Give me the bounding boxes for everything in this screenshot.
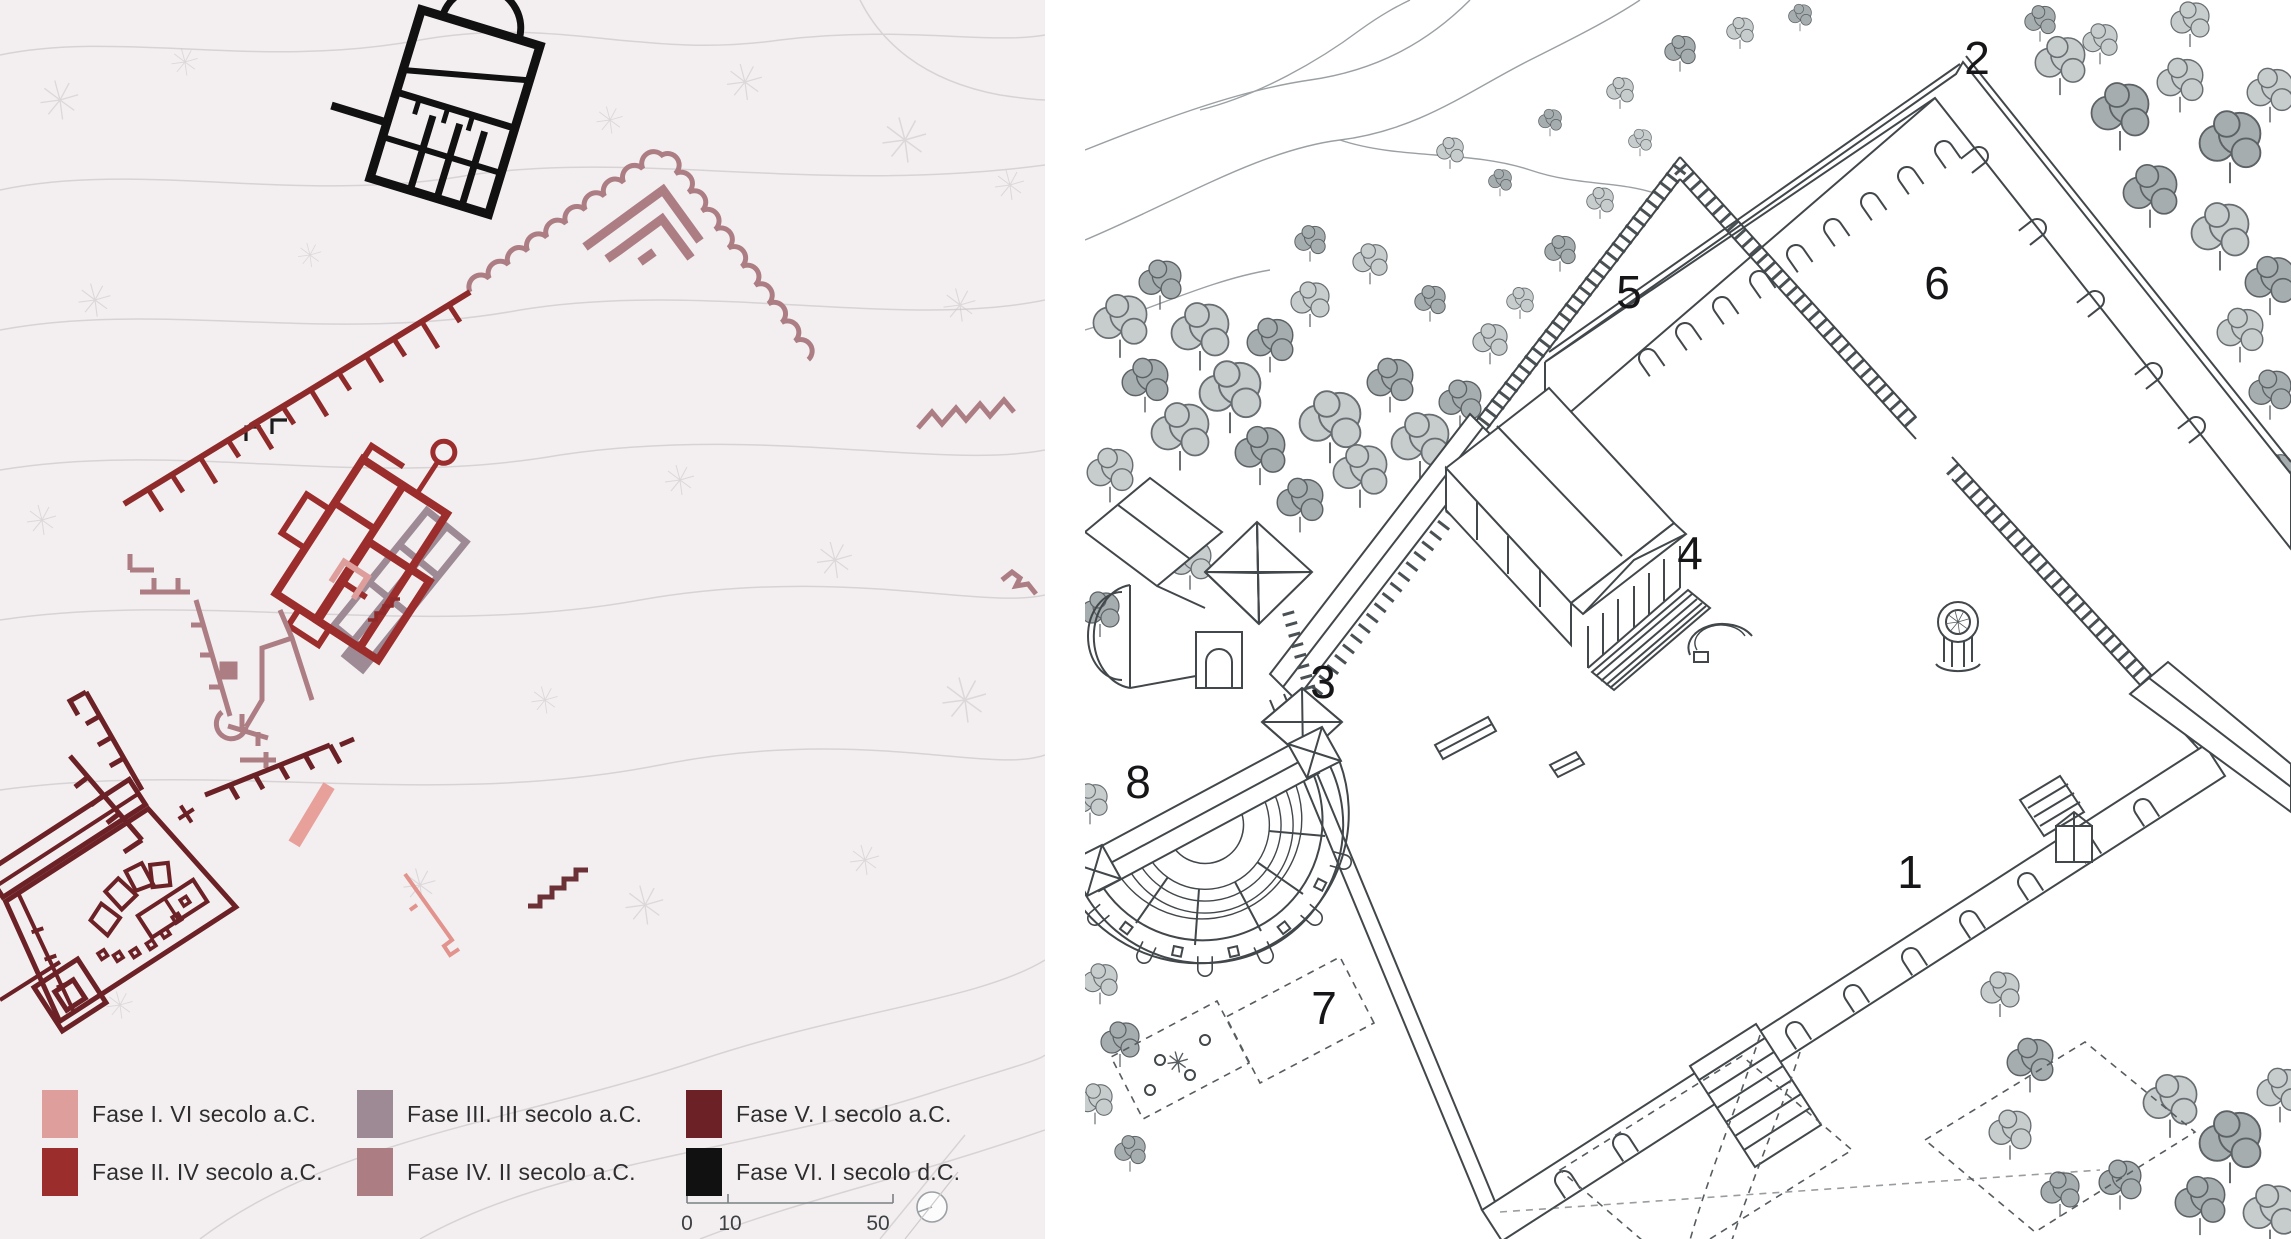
reconstruction-drawing <box>1068 0 2291 1239</box>
ruin-label-8: 8 <box>1125 755 1151 809</box>
legend-swatch-fase5 <box>686 1090 722 1138</box>
legend-label-fase5: Fase V. I secolo a.C. <box>736 1101 952 1128</box>
legend-item-fase2: Fase II. IV secolo a.C. <box>42 1148 323 1196</box>
legend-label-fase4: Fase IV. II secolo a.C. <box>407 1159 636 1186</box>
legend-label-fase6: Fase VI. I secolo d.C. <box>736 1159 960 1186</box>
figure-canvas <box>0 0 2291 1239</box>
legend-swatch-fase6 <box>686 1148 722 1196</box>
scale-label-10: 10 <box>718 1212 741 1236</box>
ruin-label-1: 1 <box>1897 845 1923 899</box>
ruin-label-7: 7 <box>1311 981 1337 1035</box>
legend-swatch-fase4 <box>357 1148 393 1196</box>
ruin-label-5: 5 <box>1616 265 1642 319</box>
legend-item-fase4: Fase IV. II secolo a.C. <box>357 1148 636 1196</box>
legend-swatch-fase2 <box>42 1148 78 1196</box>
legend-swatch-fase3 <box>357 1090 393 1138</box>
legend-swatch-fase1 <box>42 1090 78 1138</box>
ruin-label-4: 4 <box>1677 526 1703 580</box>
legend-label-fase1: Fase I. VI secolo a.C. <box>92 1101 316 1128</box>
legend-label-fase2: Fase II. IV secolo a.C. <box>92 1159 323 1186</box>
legend-label-fase3: Fase III. III secolo a.C. <box>407 1101 642 1128</box>
ruin-label-2: 2 <box>1964 31 1990 85</box>
ruin-label-3: 3 <box>1310 655 1336 709</box>
legend-item-fase1: Fase I. VI secolo a.C. <box>42 1090 316 1138</box>
scale-label-50: 50 <box>866 1212 889 1236</box>
scale-label-0: 0 <box>681 1212 693 1236</box>
gate-arch <box>1196 632 1242 688</box>
archaeological-figure: Fase I. VI secolo a.C. Fase II. IV secol… <box>0 0 2291 1239</box>
site-plan <box>0 0 1045 1239</box>
ruin-label-6: 6 <box>1924 256 1950 310</box>
legend-item-fase5: Fase V. I secolo a.C. <box>686 1090 952 1138</box>
legend-item-fase3: Fase III. III secolo a.C. <box>357 1090 642 1138</box>
legend-item-fase6: Fase VI. I secolo d.C. <box>686 1148 960 1196</box>
